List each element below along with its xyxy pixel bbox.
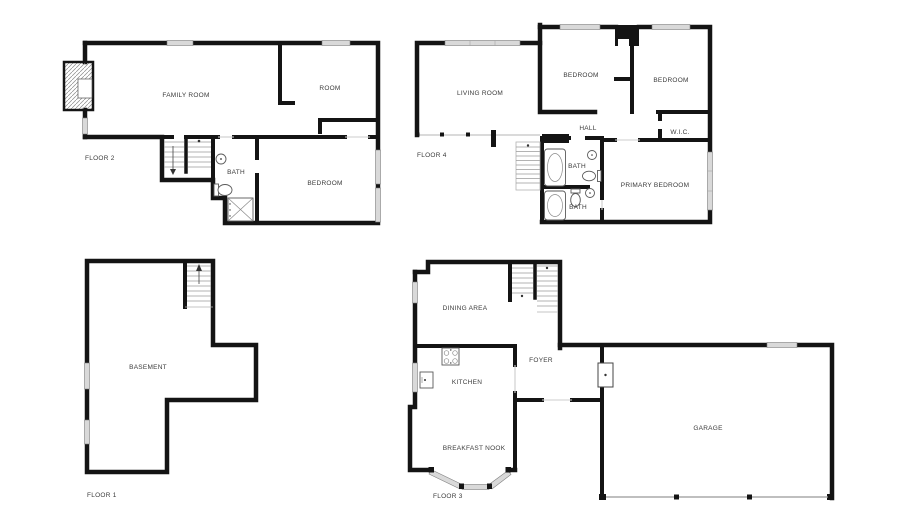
entry-door bbox=[598, 363, 613, 387]
room-label-breakfast-nook: BREAKFAST NOOK bbox=[443, 445, 506, 452]
window bbox=[413, 363, 418, 392]
floor2-walls bbox=[85, 43, 378, 223]
floorplan-canvas: FAMILY ROOM ROOM BATH BEDROOM FLOOR 2 bbox=[0, 0, 900, 529]
room-label-garage: GARAGE bbox=[693, 425, 723, 432]
room-label-basement: BASEMENT bbox=[129, 364, 167, 371]
room-label-primary-bedroom: PRIMARY BEDROOM bbox=[621, 182, 690, 189]
toilet-bowl bbox=[218, 185, 232, 196]
bay-window bbox=[429, 467, 512, 490]
window bbox=[85, 420, 90, 444]
window bbox=[322, 41, 350, 46]
room-label-living-room: LIVING ROOM bbox=[457, 90, 503, 97]
floor-label-1: FLOOR 1 bbox=[87, 492, 117, 499]
window bbox=[708, 152, 713, 210]
window bbox=[560, 25, 600, 30]
toilet-bowl bbox=[583, 171, 596, 181]
window bbox=[376, 188, 381, 222]
window bbox=[445, 41, 520, 46]
bathroom-fixtures-floor2 bbox=[214, 154, 253, 221]
stairs-floor4 bbox=[516, 142, 540, 190]
floor1-walls bbox=[87, 261, 256, 472]
room-label-foyer: FOYER bbox=[529, 357, 553, 364]
floor-1-plan: BASEMENT FLOOR 1 bbox=[60, 250, 280, 510]
floor2-windows bbox=[83, 41, 381, 223]
floor-4-plan: LIVING ROOM BEDROOM BEDROOM HALL W.I.C. … bbox=[410, 15, 730, 230]
window bbox=[167, 41, 193, 46]
floor-2-plan: FAMILY ROOM ROOM BATH BEDROOM FLOOR 2 bbox=[60, 20, 400, 230]
living-room-railing bbox=[416, 130, 541, 147]
window bbox=[652, 25, 690, 30]
fireplace bbox=[64, 62, 93, 110]
room-label-hall: HALL bbox=[579, 125, 596, 132]
room-label-bath: BATH bbox=[227, 169, 245, 176]
room-label-family-room: FAMILY ROOM bbox=[162, 92, 209, 99]
floor-label-3: FLOOR 3 bbox=[433, 493, 463, 500]
room-label-room: ROOM bbox=[319, 85, 340, 92]
room-label-bedroom: BEDROOM bbox=[307, 180, 342, 187]
room-label-bath-lower: BATH bbox=[569, 204, 587, 211]
window bbox=[85, 363, 90, 389]
room-label-wic: W.I.C. bbox=[670, 129, 689, 136]
stairs-floor1 bbox=[185, 264, 213, 307]
floor-label-4: FLOOR 4 bbox=[417, 152, 447, 159]
window bbox=[767, 343, 797, 348]
window bbox=[413, 282, 418, 303]
room-label-kitchen: KITCHEN bbox=[452, 379, 482, 386]
floor-label-2: FLOOR 2 bbox=[85, 155, 115, 162]
room-label-bath-upper: BATH bbox=[568, 163, 586, 170]
garage-door-edge bbox=[599, 494, 834, 500]
room-label-bedroom-right: BEDROOM bbox=[653, 77, 688, 84]
window bbox=[83, 118, 88, 134]
room-label-bedroom-left: BEDROOM bbox=[563, 72, 598, 79]
window bbox=[376, 150, 381, 184]
floor-3-plan: DINING AREA KITCHEN FOYER BREAKFAST NOOK… bbox=[405, 250, 845, 515]
room-label-dining-area: DINING AREA bbox=[443, 305, 488, 312]
toilet-tank bbox=[571, 189, 580, 193]
toilet-tank bbox=[598, 171, 602, 182]
